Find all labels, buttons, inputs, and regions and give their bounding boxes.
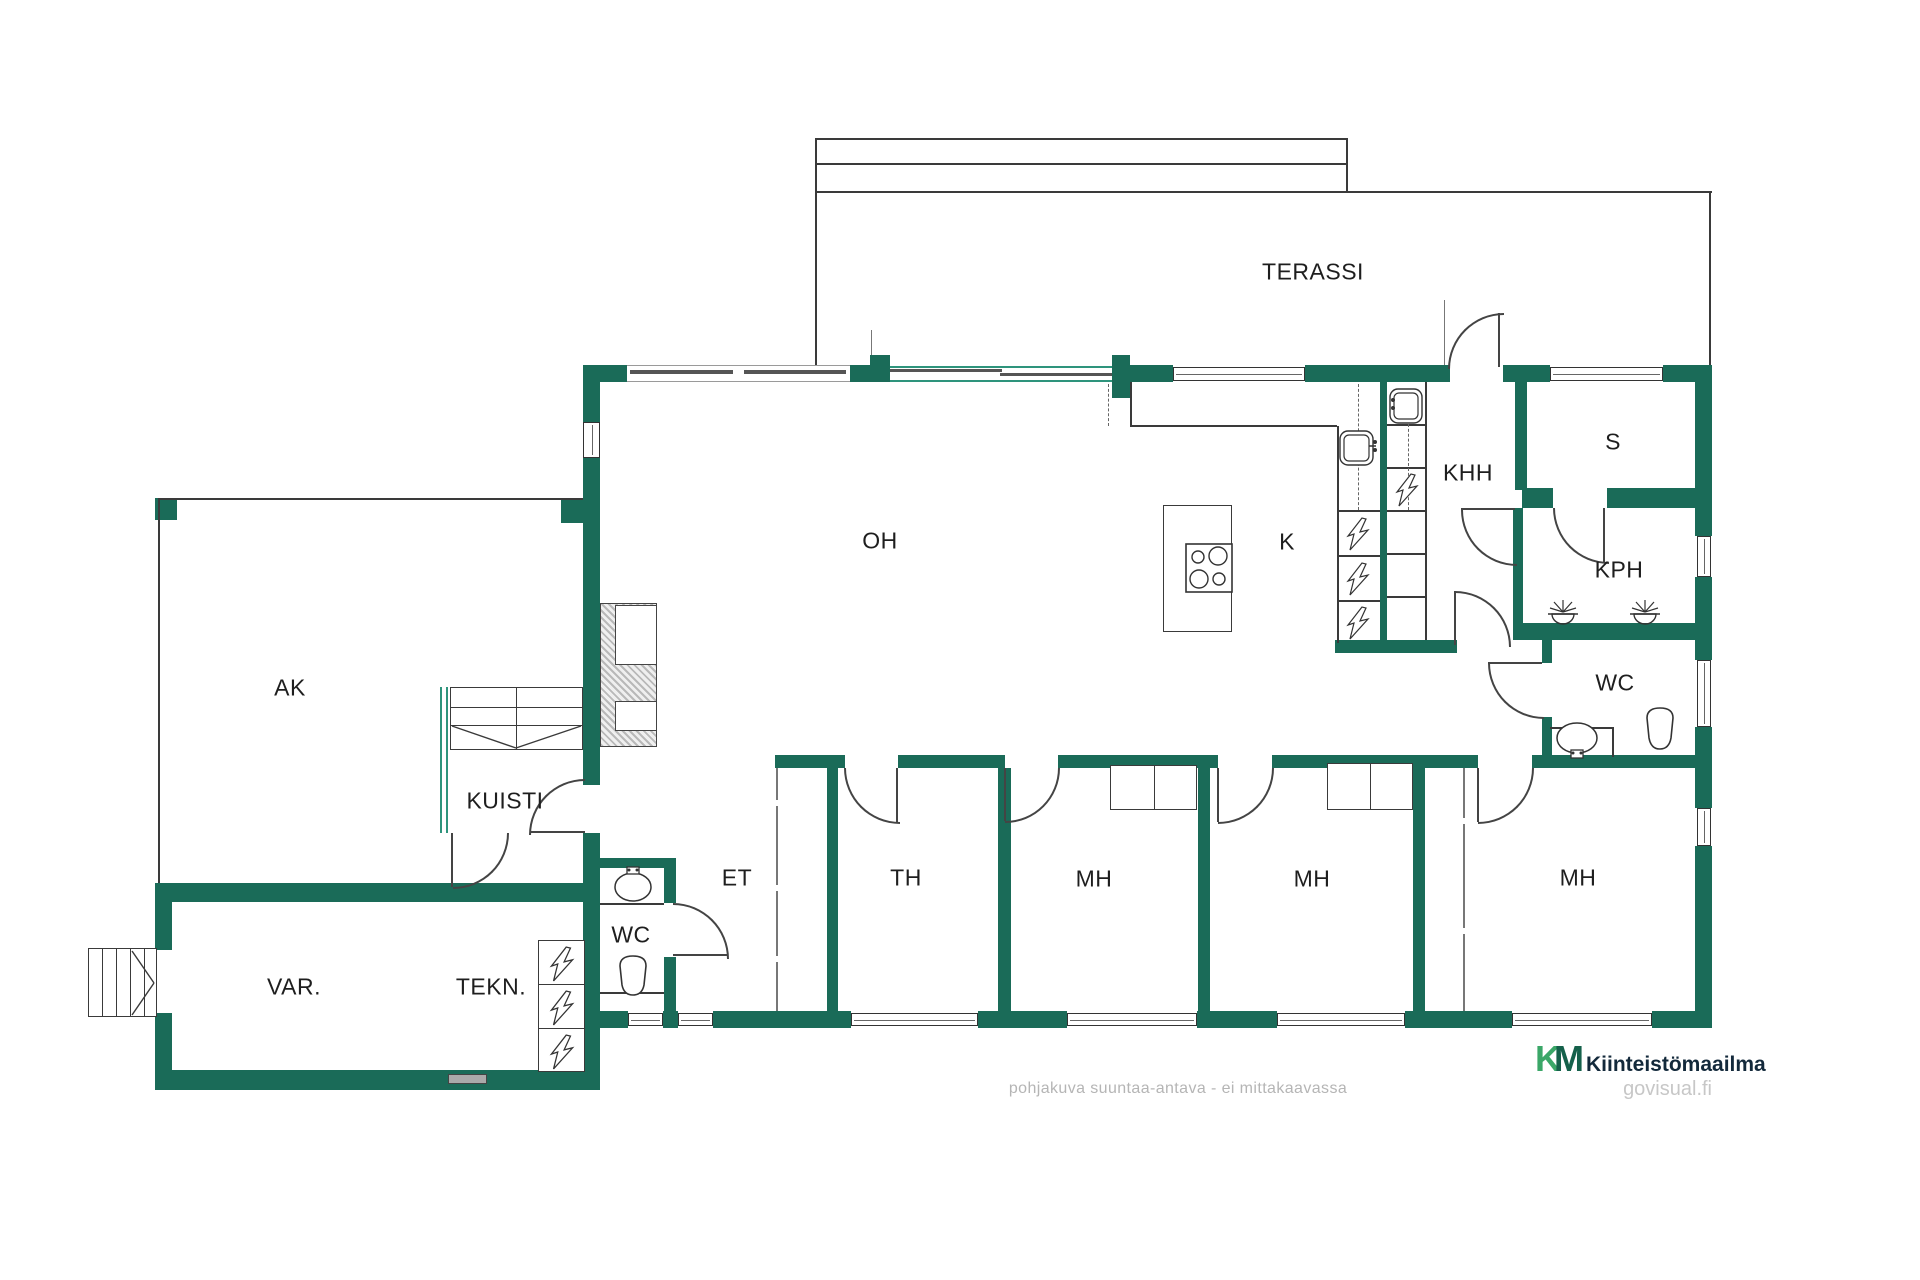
wall-segment [1695,365,1712,536]
room-label-tekn: TEKN. [456,974,526,1001]
appliance-dash-line [1108,384,1109,426]
window [1512,1013,1652,1026]
door-threshold [448,1074,487,1084]
door-leaf [1461,508,1515,510]
wall-segment [713,1011,851,1028]
door-leaf [1477,768,1479,822]
porch-glazed-wall [440,687,442,833]
window [1697,808,1711,846]
wall-pier [870,355,890,365]
room-label-var: VAR. [267,974,321,1001]
wall-segment [561,498,600,523]
chimney-flue [615,605,657,665]
wall-pier [1112,355,1130,398]
wardrobe-divider [1154,765,1155,810]
door-arc [453,833,509,889]
glazing-edge [627,381,850,382]
cabinet-shelf-line [1337,510,1380,512]
terrace-steps-mid [815,163,1346,165]
stove-icon [1185,543,1234,594]
sliding-door-track [890,369,1002,372]
watermark-text: govisual.fi [1623,1078,1712,1101]
wall-segment [155,1070,600,1090]
wall-segment [1405,1011,1512,1028]
kitchen-counter-edge [1130,382,1132,425]
closet-sliding-track [1463,934,1465,1011]
kitchen-counter-edge [1130,425,1337,427]
wall-segment [1542,640,1552,663]
door-arc [1448,313,1504,369]
appliance-bolt-icon [547,946,577,982]
door-arc [1005,768,1060,823]
window [1277,1013,1405,1026]
door-leaf [1488,662,1542,664]
wall-segment [1198,768,1210,1011]
room-label-mh3: MH [1560,865,1597,892]
carport-outline [158,498,160,883]
glazed-wall-line [890,366,1112,368]
wall-segment [1695,577,1712,660]
window [1067,1013,1197,1026]
disclaimer-text: pohjakuva suuntaa-antava - ei mittakaava… [1009,1080,1347,1098]
wall-segment [1380,380,1387,640]
appliance-bolt-icon [1393,473,1421,507]
door-leaf [531,831,585,833]
wall-segment [155,883,583,902]
appliance-bolt-icon [547,1034,577,1070]
wall-segment [1305,365,1450,382]
wall-segment [664,957,676,1011]
glazing-edge [627,365,850,366]
sink-icon [1389,386,1427,426]
door-arc [1478,768,1534,824]
room-label-mh2: MH [1294,866,1331,893]
panel-divider [538,1028,585,1029]
wall-segment [1522,488,1553,508]
chimney-flue [615,701,657,731]
closet-sliding-track [1463,824,1465,928]
window [1550,367,1663,381]
terrace-steps-right [1346,138,1348,193]
wall-segment [1542,717,1552,763]
step-line [116,948,117,1017]
wall-segment [978,1011,1067,1028]
wall-segment [1335,640,1457,653]
sliding-door-track [744,370,846,374]
terrace-left-edge [815,138,817,365]
wall-segment [1695,846,1712,1028]
wall-segment [898,755,1005,768]
wall-segment [1197,1011,1277,1028]
step-line [102,948,103,1017]
door-leaf [1217,768,1219,822]
room-label-terassi: TERASSI [1262,259,1364,286]
closet-sliding-track [776,891,778,956]
terrace-steps-top [815,138,1346,140]
room-label-s: S [1605,429,1621,456]
shower-icon [1546,598,1580,630]
door-arc [1461,510,1517,566]
cabinet-shelf-line [1337,555,1380,557]
door-leaf [1603,508,1605,562]
door-arc [1218,768,1274,824]
wall-segment [583,833,600,1090]
terrace-divider-line [1444,300,1445,365]
km-logo-m: M [1554,1038,1584,1080]
appliance-bolt-icon [1344,562,1372,596]
panel-divider [538,984,585,985]
wall-segment [1413,768,1425,1011]
wall-segment [663,1011,678,1028]
wall-segment [775,755,845,768]
wall-segment [827,768,838,1011]
wall-segment [155,883,172,950]
door-arc [1455,591,1511,647]
entry-arrow-icon [118,948,158,1018]
wc-counter-edge [1612,727,1614,757]
stair-direction-arrow [450,687,583,750]
closet-sliding-track [1463,768,1465,818]
door-arc [673,903,729,959]
window [583,422,600,458]
window [1173,367,1305,381]
terrace-top-edge [815,191,1712,193]
toilet-icon [615,954,651,998]
window [628,1013,663,1026]
wall-segment [850,365,890,382]
cabinet-shelf-line [1337,600,1380,602]
room-label-th: TH [890,865,922,892]
room-label-mh1: MH [1076,866,1113,893]
door-leaf [451,833,453,887]
closet-sliding-track [776,806,778,885]
cabinet-shelf-line [1387,596,1425,598]
km-logo: K M Kiinteistömaailma [1535,1038,1766,1080]
room-label-k: K [1279,529,1295,556]
wall-segment [583,365,600,422]
room-label-ak: AK [274,675,306,702]
sink-icon [612,866,654,904]
window [1697,660,1711,727]
closet-sliding-track [776,768,778,800]
door-arc [1488,663,1544,719]
sliding-door-track [1000,373,1112,376]
room-label-kuisti: KUISTI [466,788,543,815]
room-label-et: ET [722,865,752,892]
km-logo-name: Kiinteistömaailma [1586,1053,1766,1077]
room-label-wc-left: WC [611,922,650,949]
wardrobe-divider [1370,763,1371,810]
room-label-wc-right: WC [1595,670,1634,697]
door-leaf [1454,591,1456,645]
window [851,1013,978,1026]
wall-segment [664,868,676,903]
wall-segment [583,1011,628,1028]
cabinet-shelf-line [1387,467,1425,469]
appliance-bolt-icon [1344,517,1372,551]
room-label-oh: OH [862,528,898,555]
door-leaf [1498,313,1500,367]
wall-segment [1130,365,1173,382]
room-label-kph: KPH [1595,557,1644,584]
door-leaf [896,768,898,822]
window [1697,536,1711,577]
shower-icon [1628,598,1662,630]
sliding-door-track [630,370,733,374]
cabinet-shelf-line [1387,553,1425,555]
wall-segment [1607,488,1712,508]
window [678,1013,713,1026]
cabinet-shelf-line [1387,510,1425,512]
sink-icon [1554,720,1600,760]
room-label-khh: KHH [1443,460,1493,487]
door-arc [844,768,900,824]
appliance-bolt-icon [547,990,577,1026]
sink-icon [1339,428,1379,468]
glazed-wall-line [890,380,1112,382]
wall-segment [1515,380,1527,490]
terrace-right-edge [1709,191,1711,365]
appliance-bolt-icon [1344,606,1372,640]
closet-sliding-track [776,962,778,1011]
door-leaf [1004,768,1006,821]
carport-outline [158,498,583,500]
porch-glazed-wall [446,687,448,833]
floor-plan: TERASSI [0,0,1920,1280]
door-leaf [673,954,727,956]
toilet-icon [1642,706,1678,752]
